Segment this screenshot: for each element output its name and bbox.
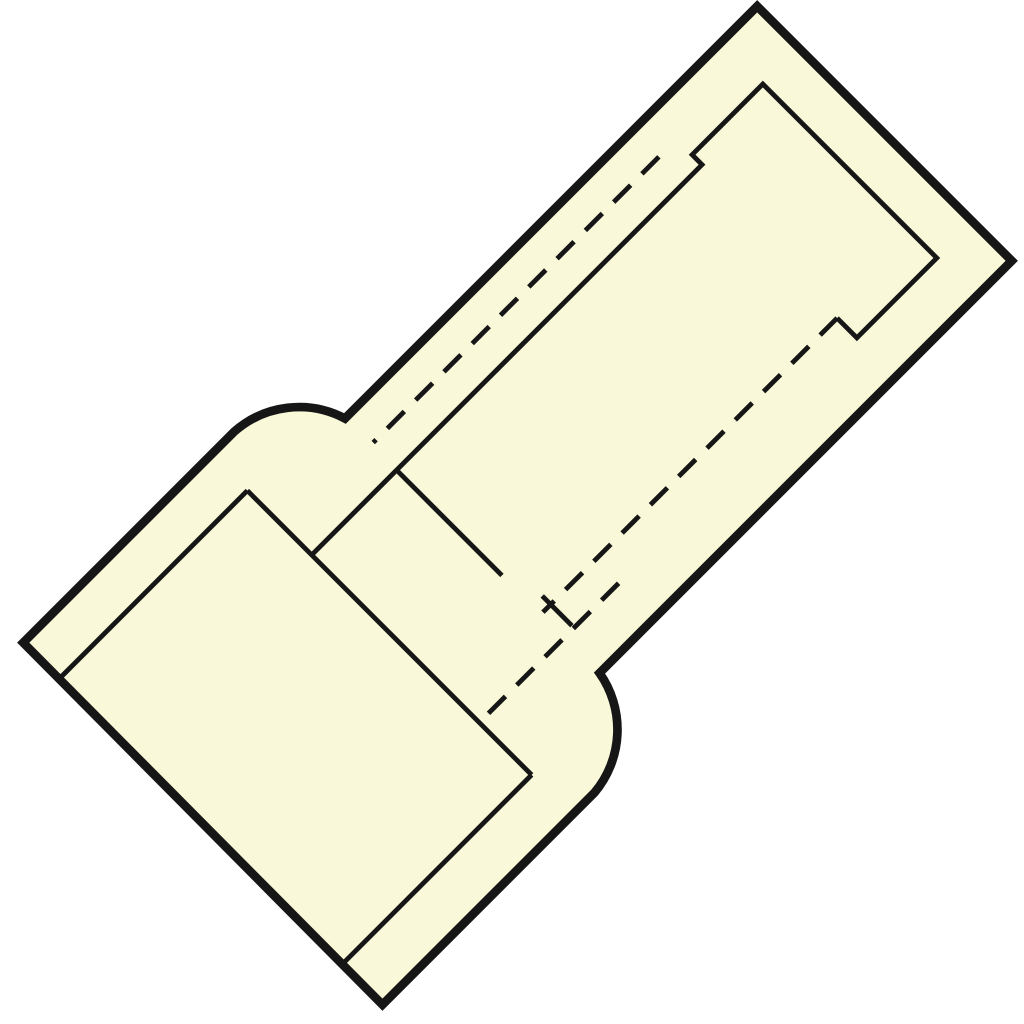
rotated-drawing-group bbox=[22, 0, 1024, 1005]
connector-illustration bbox=[0, 0, 1024, 1024]
connector-outer-contour bbox=[22, 0, 1024, 1005]
connector-diagram-svg bbox=[0, 0, 1024, 1024]
